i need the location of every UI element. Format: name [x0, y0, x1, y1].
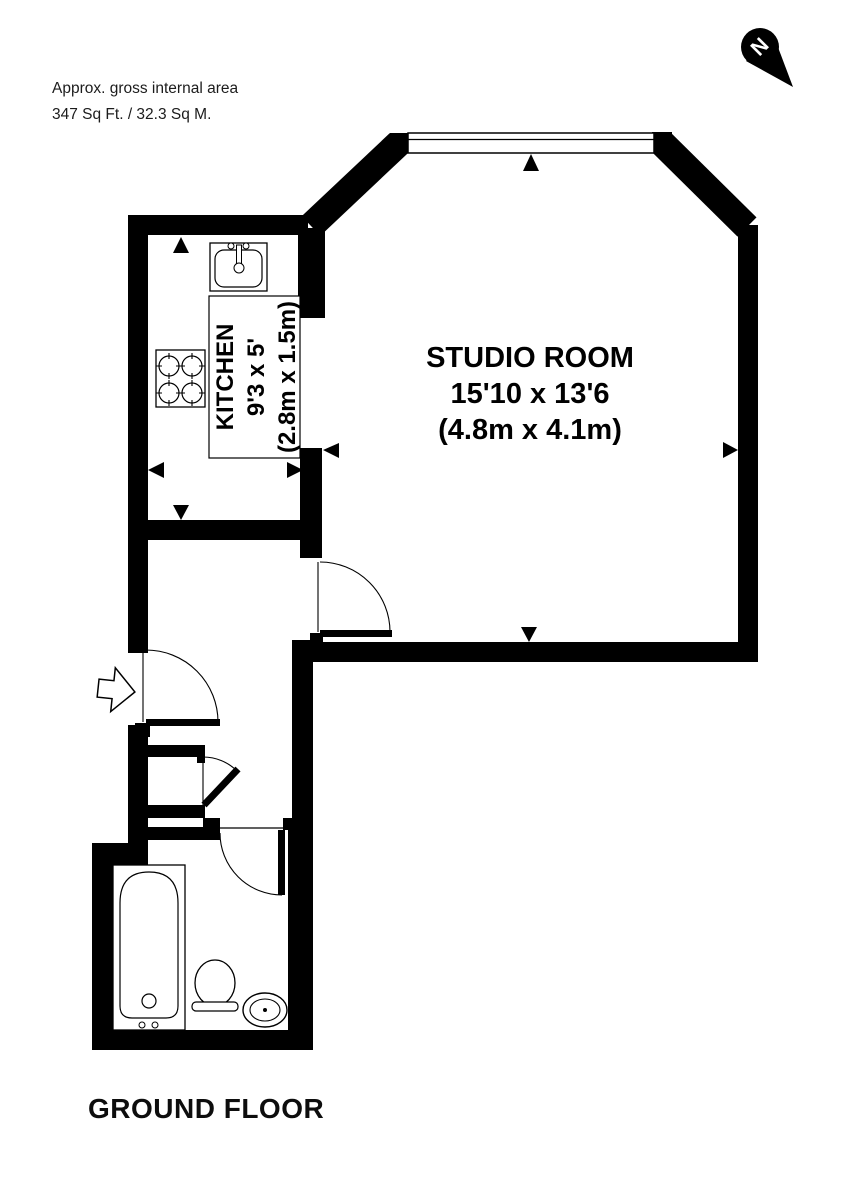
- basin-drain: [263, 1008, 267, 1012]
- wash-basin-icon: [243, 993, 287, 1027]
- door-leaf: [146, 719, 220, 726]
- wall-junction-block: [203, 818, 220, 840]
- wall-hall-right: [292, 640, 313, 830]
- door-swing-arc: [320, 562, 390, 632]
- entrance-door: [143, 650, 220, 726]
- studio-door: [318, 562, 392, 637]
- wall-arrow-up-kitchen: [173, 237, 189, 253]
- wall-arrow-up-studio: [523, 154, 539, 171]
- wall-bath-door-jamb: [283, 818, 292, 830]
- bathtub-icon: [113, 865, 185, 1030]
- wall-studio-bottom: [292, 642, 758, 662]
- toilet-icon: [192, 960, 238, 1011]
- area-note-line2: 347 Sq Ft. / 32.3 Sq M.: [52, 102, 238, 128]
- wall-closet-cap: [197, 745, 205, 763]
- wall-arrow-left-kitchen: [148, 462, 164, 478]
- door-swing-arc: [146, 650, 218, 722]
- wall-bathroom-right: [288, 830, 313, 1050]
- kitchen-label: KITCHEN 9'3 x 5' (2.8m x 1.5m): [210, 292, 306, 462]
- sink-spout: [237, 245, 242, 264]
- room-size-metric: (4.8m x 4.1m): [380, 412, 680, 448]
- wall-arrow-down-studio: [521, 627, 537, 642]
- room-size-imperial: 9'3 x 5': [241, 292, 272, 462]
- floor-plan-drawing: N: [0, 0, 848, 1200]
- room-size-imperial: 15'10 x 13'6: [380, 376, 680, 412]
- north-compass-icon: N: [741, 28, 793, 87]
- entrance-arrow-icon: [96, 666, 137, 714]
- toilet-cistern: [192, 1002, 238, 1011]
- toilet-bowl: [195, 960, 235, 1006]
- door-leaf: [278, 830, 285, 895]
- wall-arrow-down-kitchen: [173, 505, 189, 520]
- bathtub-outer: [113, 865, 185, 1030]
- hob-outline: [156, 350, 205, 407]
- wall-bathroom-left: [92, 843, 115, 1050]
- wall-left-upper: [128, 215, 148, 653]
- sink-tap: [243, 243, 249, 249]
- wall-arrow-right-studio: [723, 442, 738, 458]
- cooker-hob-icon: [156, 350, 205, 407]
- room-name: STUDIO ROOM: [380, 340, 680, 376]
- room-size-metric: (2.8m x 1.5m): [272, 292, 303, 462]
- bathroom-door: [218, 828, 285, 895]
- door-swing-arc: [220, 833, 282, 895]
- wall-divider-lower: [300, 448, 322, 558]
- wall-closet-top: [148, 745, 205, 757]
- door-swing-arc: [203, 757, 237, 771]
- studio-room-label: STUDIO ROOM 15'10 x 13'6 (4.8m x 4.1m): [380, 340, 680, 448]
- room-name: KITCHEN: [210, 292, 241, 462]
- wall-closet-bottom: [147, 805, 205, 818]
- wall-diagonal-right: [661, 142, 747, 227]
- door-leaf: [320, 630, 392, 637]
- closet-door: [203, 757, 238, 805]
- wall-arrow-left-studio: [323, 443, 339, 458]
- bay-window: [408, 133, 654, 153]
- floorplan-page: N Approx. gross internal area 347 Sq Ft.…: [0, 0, 848, 1200]
- wall-kitchen-bottom: [140, 520, 322, 540]
- area-note-line1: Approx. gross internal area: [52, 76, 238, 102]
- window-frame: [408, 133, 654, 153]
- wall-diagonal-left: [311, 143, 399, 226]
- walls: [92, 132, 758, 1050]
- sink-drain: [234, 263, 244, 273]
- kitchen-sink-icon: [210, 243, 267, 291]
- area-note: Approx. gross internal area 347 Sq Ft. /…: [52, 76, 238, 128]
- wall-step-block: [92, 843, 148, 865]
- door-leaf: [204, 769, 238, 805]
- sink-tap: [228, 243, 234, 249]
- floor-title: GROUND FLOOR: [88, 1093, 324, 1125]
- wall-bathroom-bottom: [92, 1030, 313, 1050]
- wall-studio-right: [738, 225, 758, 662]
- wall-kitchen-top: [128, 215, 308, 235]
